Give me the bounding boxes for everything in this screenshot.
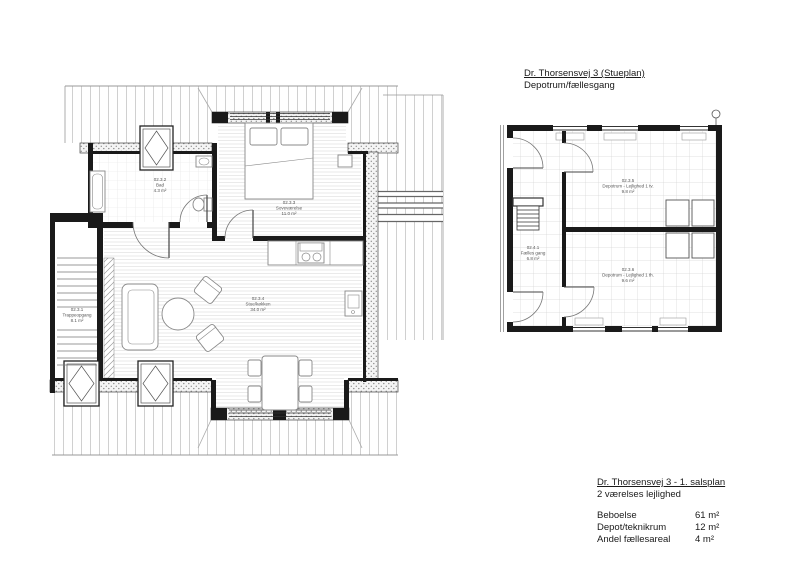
summary-subtitle: 2 værelses lejlighed bbox=[597, 489, 725, 501]
sofa-symbol bbox=[122, 284, 158, 350]
svg-text:Trappeopgang: Trappeopgang bbox=[62, 313, 92, 318]
svg-text:Soveværelse: Soveværelse bbox=[276, 206, 303, 211]
bedside-table-symbol bbox=[338, 155, 352, 167]
svg-text:4.3 m²: 4.3 m² bbox=[154, 188, 167, 193]
area-label: Beboelse bbox=[597, 510, 695, 522]
svg-text:9.8 m²: 9.8 m² bbox=[622, 189, 635, 194]
skylight-icon bbox=[138, 361, 173, 406]
svg-text:6.8 m²: 6.8 m² bbox=[527, 256, 540, 261]
area-row: Beboelse 61 m² bbox=[597, 510, 725, 522]
area-label: Andel fællesareal bbox=[597, 534, 695, 546]
area-value: 4 m² bbox=[695, 534, 714, 546]
room-label: 02.3.4 bbox=[252, 296, 265, 301]
area-value: 61 m² bbox=[695, 510, 719, 522]
svg-text:Fælles gang: Fælles gang bbox=[521, 251, 546, 256]
svg-text:Depotrum - Lejlighed 1 th.: Depotrum - Lejlighed 1 th. bbox=[602, 273, 654, 278]
sink-symbol bbox=[345, 291, 362, 316]
skylight-icon bbox=[64, 361, 99, 406]
roof-ridge-bands bbox=[378, 191, 443, 222]
grid-marker-icon bbox=[712, 110, 720, 125]
stueplan-title: Dr. Thorsensvej 3 (Stueplan) bbox=[524, 68, 645, 80]
stueplan-subtitle: Depotrum/fællesgang bbox=[524, 80, 645, 92]
facade-lines bbox=[501, 125, 504, 332]
coffee-table-symbol bbox=[162, 298, 194, 330]
svg-text:34.0 m²: 34.0 m² bbox=[250, 307, 266, 312]
basin-symbol bbox=[196, 156, 212, 167]
svg-text:8.1 m²: 8.1 m² bbox=[71, 318, 84, 323]
svg-text:Bad: Bad bbox=[156, 183, 165, 188]
room-label: 02.3.3 bbox=[283, 200, 296, 205]
room-label: 02.4.1 bbox=[527, 245, 540, 250]
stueplan-stairs-symbol bbox=[513, 198, 543, 230]
area-table: Beboelse 61 m² Depot/teknikrum 12 m² And… bbox=[597, 510, 725, 546]
room-label: 02.3.5 bbox=[622, 178, 635, 183]
svg-text:11.0 m²: 11.0 m² bbox=[282, 211, 297, 216]
floor-plan-document: 02.3.1 Trappeopgang 8.1 m² 02.3.2 Bad 4.… bbox=[0, 0, 799, 565]
summary-block: Dr. Thorsensvej 3 - 1. salsplan 2 værels… bbox=[597, 477, 725, 546]
svg-text:Depotrum - Lejlighed 1 tv.: Depotrum - Lejlighed 1 tv. bbox=[602, 184, 653, 189]
first-floor-plan-drawing: 02.3.1 Trappeopgang 8.1 m² 02.3.2 Bad 4.… bbox=[50, 86, 443, 455]
summary-title: Dr. Thorsensvej 3 - 1. salsplan bbox=[597, 477, 725, 489]
area-label: Depot/teknikrum bbox=[597, 522, 695, 534]
room-label: 02.3.1 bbox=[71, 307, 84, 312]
stueplan-drawing: 02.4.1 Fælles gang 6.8 m² 02.3.5 Depotru… bbox=[501, 110, 723, 332]
room-label: 02.3.2 bbox=[154, 177, 167, 182]
skylight-icon bbox=[140, 126, 173, 170]
area-value: 12 m² bbox=[695, 522, 719, 534]
svg-text:Stue/køkken: Stue/køkken bbox=[245, 302, 271, 307]
area-row: Andel fællesareal 4 m² bbox=[597, 534, 725, 546]
area-row: Depot/teknikrum 12 m² bbox=[597, 522, 725, 534]
dining-table-symbol bbox=[262, 356, 298, 410]
room-label: 02.3.6 bbox=[622, 267, 635, 272]
toilet-symbol bbox=[193, 198, 212, 211]
svg-text:9.6 m²: 9.6 m² bbox=[622, 278, 635, 283]
stueplan-title-block: Dr. Thorsensvej 3 (Stueplan) Depotrum/fæ… bbox=[524, 68, 645, 92]
